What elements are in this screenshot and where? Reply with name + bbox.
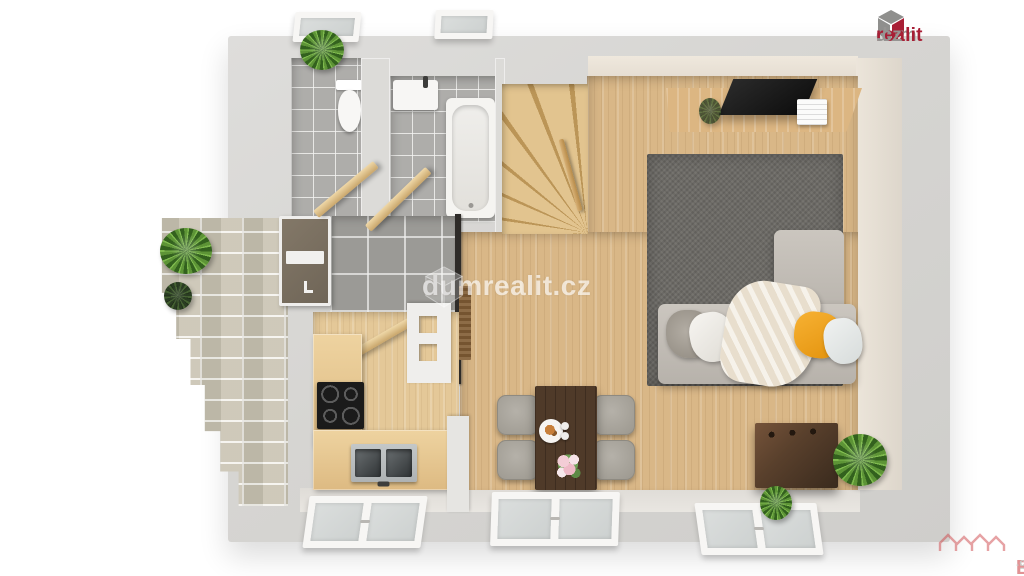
bathtub [446, 98, 495, 218]
washbasin [393, 80, 438, 110]
sink-bowl-left [355, 449, 381, 477]
window-pane [366, 503, 419, 541]
patio-plant-icon [160, 228, 212, 274]
sink-faucet [378, 482, 390, 487]
floorplan-render: dumrealit.cz dumrealit.cz RealBonus.cz [0, 0, 1024, 576]
basin-faucet [423, 76, 428, 88]
niche-lower [419, 344, 437, 361]
plate-with-food [539, 419, 563, 443]
dining-chair-bottom-left [497, 440, 539, 480]
niche-upper [419, 316, 437, 333]
window-pane [702, 510, 757, 548]
window-plant-icon [760, 486, 792, 520]
window-handle [550, 517, 560, 520]
front-door-glass-stripe [286, 251, 324, 264]
center-watermark: dumrealit.cz [422, 262, 466, 310]
living-right-wall-face [856, 58, 902, 490]
toilet-tank [336, 80, 362, 90]
window-bottom-right [694, 503, 823, 555]
kitchen-dining-wall-stub [447, 416, 469, 512]
window-pane [497, 499, 551, 539]
flower-bouquet [553, 450, 583, 482]
bathtub-basin [452, 105, 489, 211]
patio-small-plant-icon [164, 282, 192, 310]
storage-chest [755, 423, 838, 488]
kitchen-niche-wall [407, 303, 451, 383]
induction-cooktop [317, 382, 364, 429]
window-bottom-center [490, 492, 620, 546]
window-handle [754, 527, 764, 530]
winder-staircase [502, 84, 588, 234]
logo-cz: .cz [876, 25, 902, 47]
window-bottom-left [302, 496, 427, 548]
realbonus-watermark: RealBonus.cz [896, 532, 1016, 557]
window-handle [360, 520, 370, 523]
kitchen-sink [351, 444, 417, 482]
window-pane [441, 16, 488, 33]
dining-chair-bottom-right [593, 440, 635, 480]
cup-1 [561, 422, 569, 430]
sink-bowl-right [386, 449, 412, 477]
dumrealit-logo: dumrealit.cz [876, 8, 906, 42]
front-door [279, 216, 331, 306]
window-top-bath [434, 10, 494, 39]
front-door-handle [304, 281, 313, 293]
window-pane [558, 499, 612, 539]
wc-bath-divider-wall [361, 58, 390, 222]
window-pane [310, 503, 363, 541]
bathtub-drain [468, 203, 473, 208]
realbonus-houses-icon [938, 532, 1016, 552]
realbonus-cz: .cz [1016, 557, 1024, 569]
sideboard-plant-icon [699, 98, 721, 124]
dining-chair-top-left [497, 395, 539, 435]
wall-control-box [797, 99, 827, 125]
center-watermark-text: dumrealit.cz [422, 270, 591, 302]
cup-2 [561, 432, 569, 440]
wc-plant-icon [300, 30, 344, 70]
chest-plant-icon [833, 434, 887, 486]
dining-chair-top-right [593, 395, 635, 435]
toilet [338, 90, 361, 132]
